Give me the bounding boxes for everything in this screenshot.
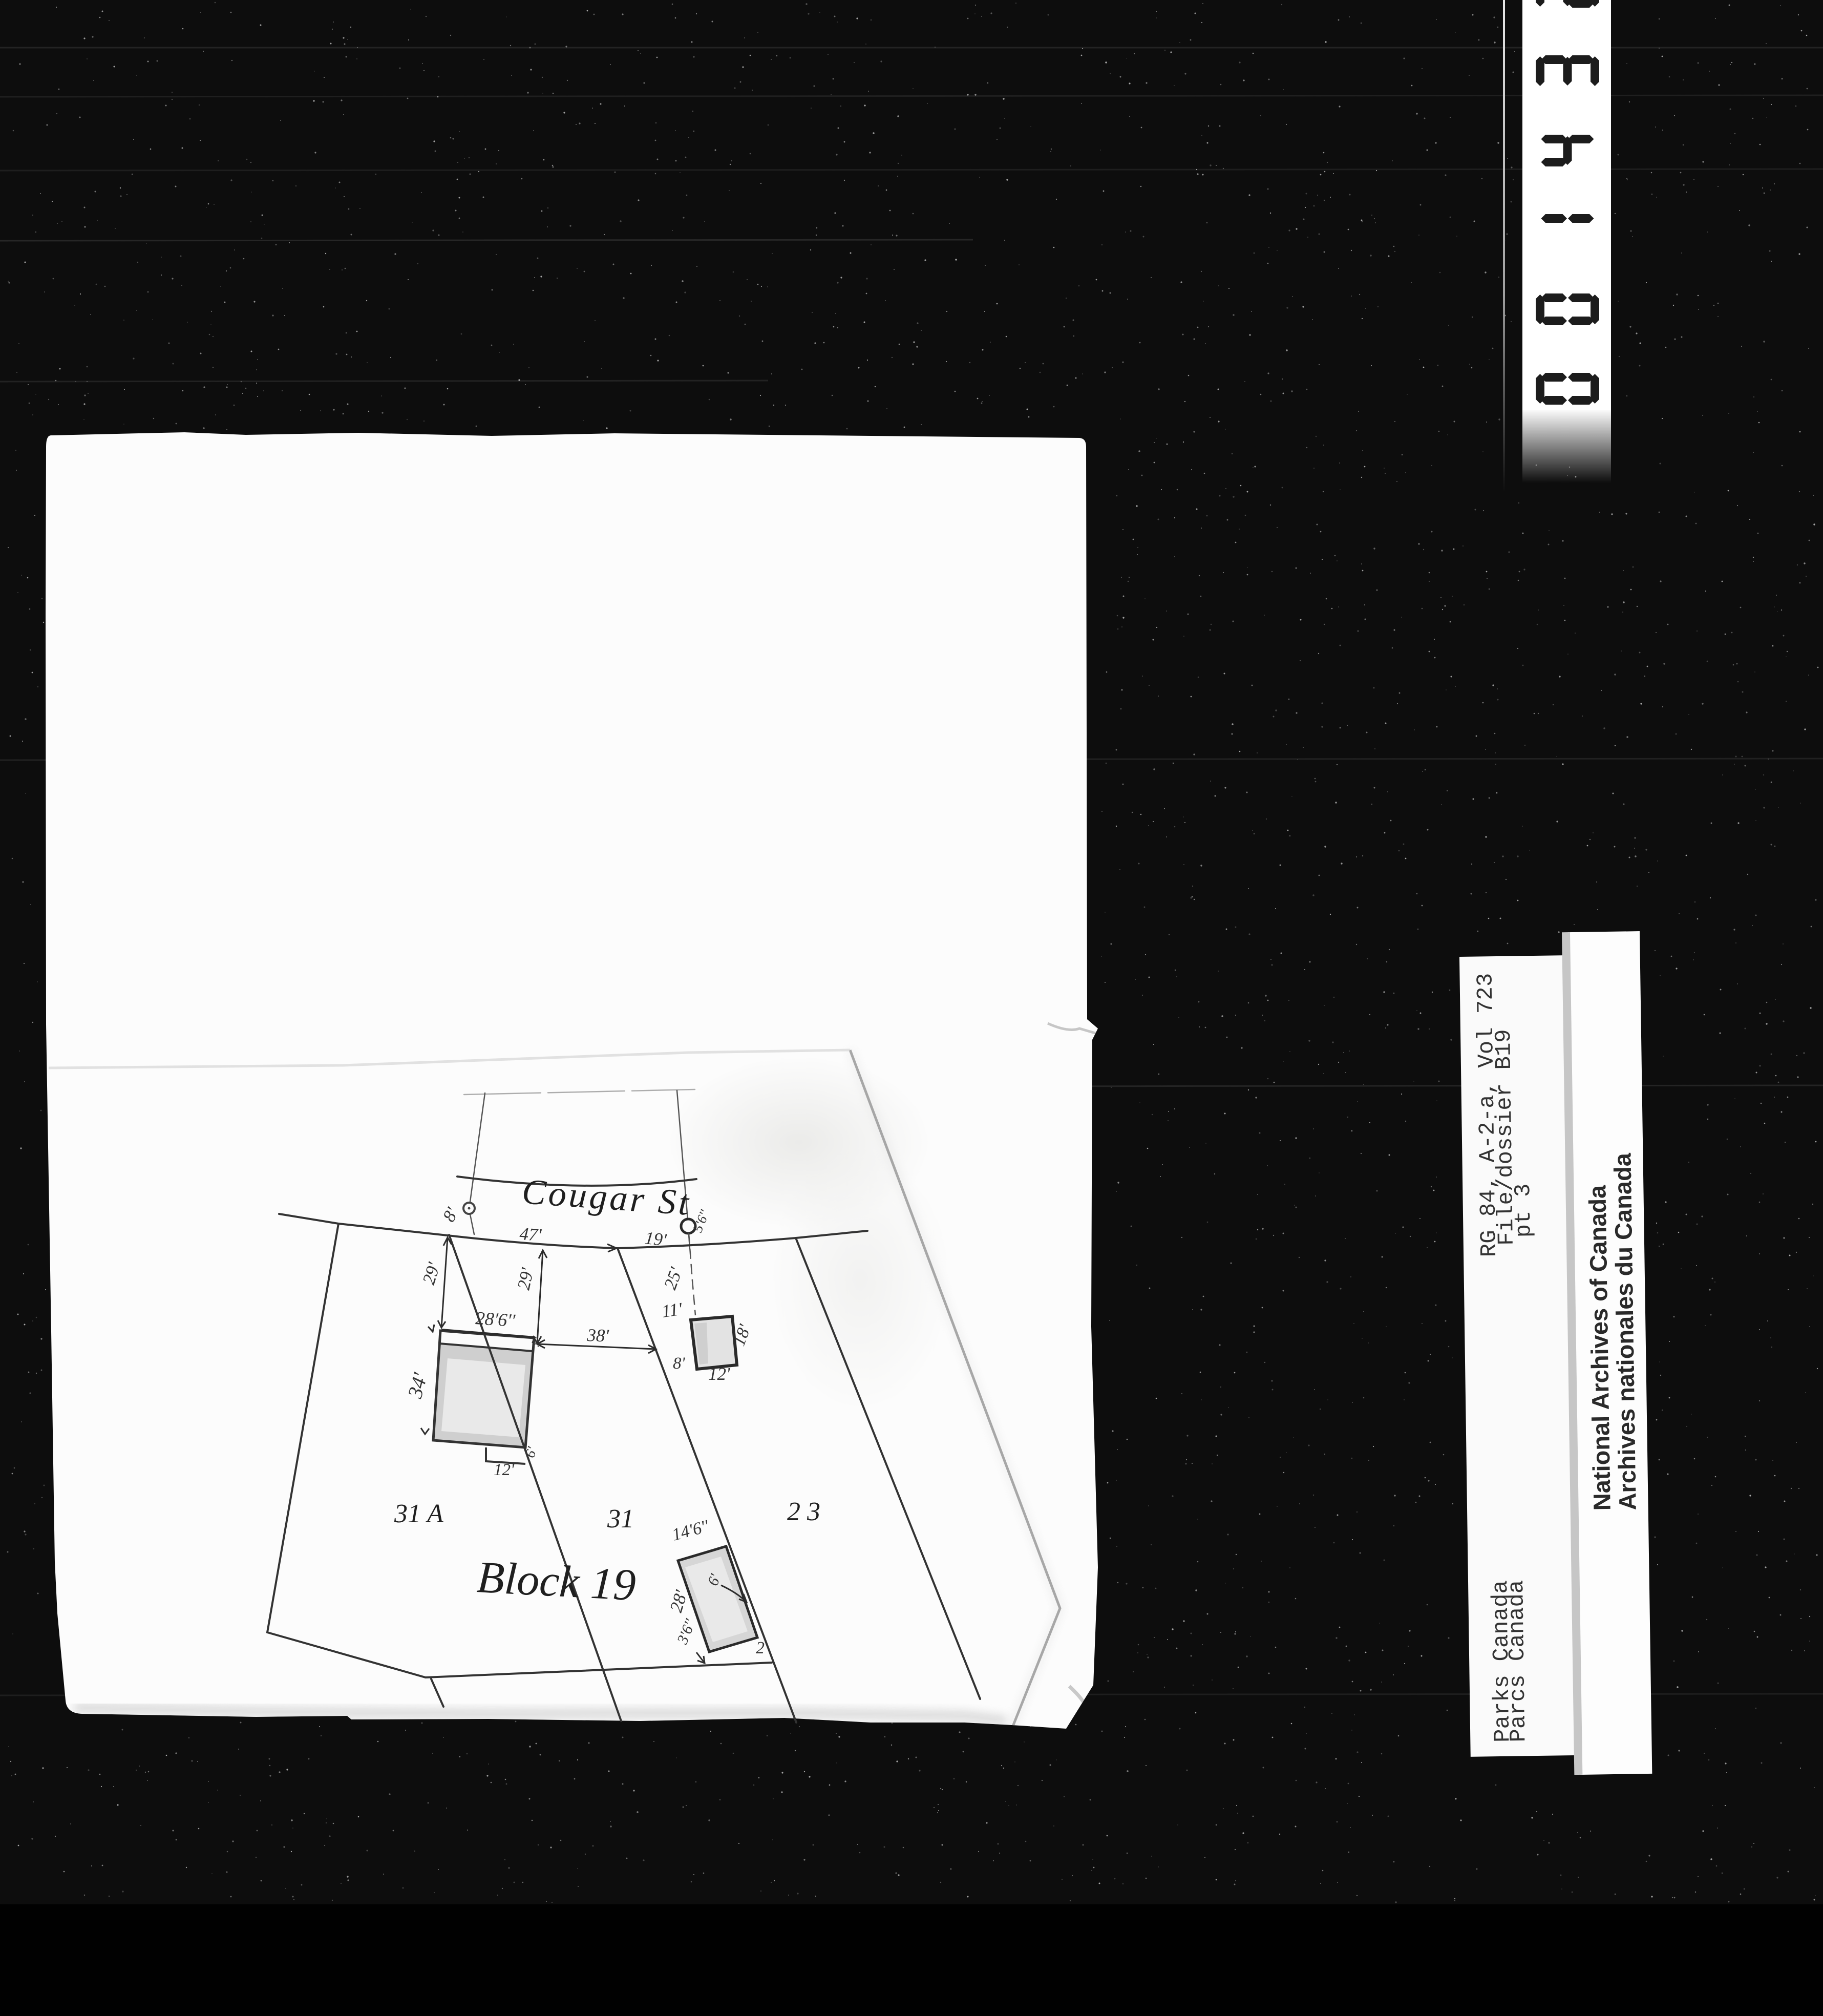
svg-text:19': 19' [644,1228,668,1250]
svg-text:31 A: 31 A [394,1499,443,1528]
svg-text:Archives nationales du Canada: Archives nationales du Canada [1608,1152,1641,1510]
svg-text:12': 12' [708,1364,730,1384]
svg-text:pt 3: pt 3 [1511,1183,1537,1237]
svg-text:2 3: 2 3 [787,1497,820,1526]
svg-text:11': 11' [661,1299,684,1321]
svg-text:Block 19: Block 19 [476,1552,637,1610]
svg-text:8': 8' [673,1354,686,1373]
svg-text:28'6'': 28'6'' [475,1308,516,1331]
svg-text:47': 47' [519,1224,542,1245]
svg-text:Parcs Canada: Parcs Canada [1504,1580,1532,1742]
svg-text:12': 12' [494,1461,515,1479]
svg-text:31: 31 [607,1504,634,1534]
svg-text:2: 2 [756,1639,765,1657]
svg-text:38': 38' [586,1325,609,1346]
